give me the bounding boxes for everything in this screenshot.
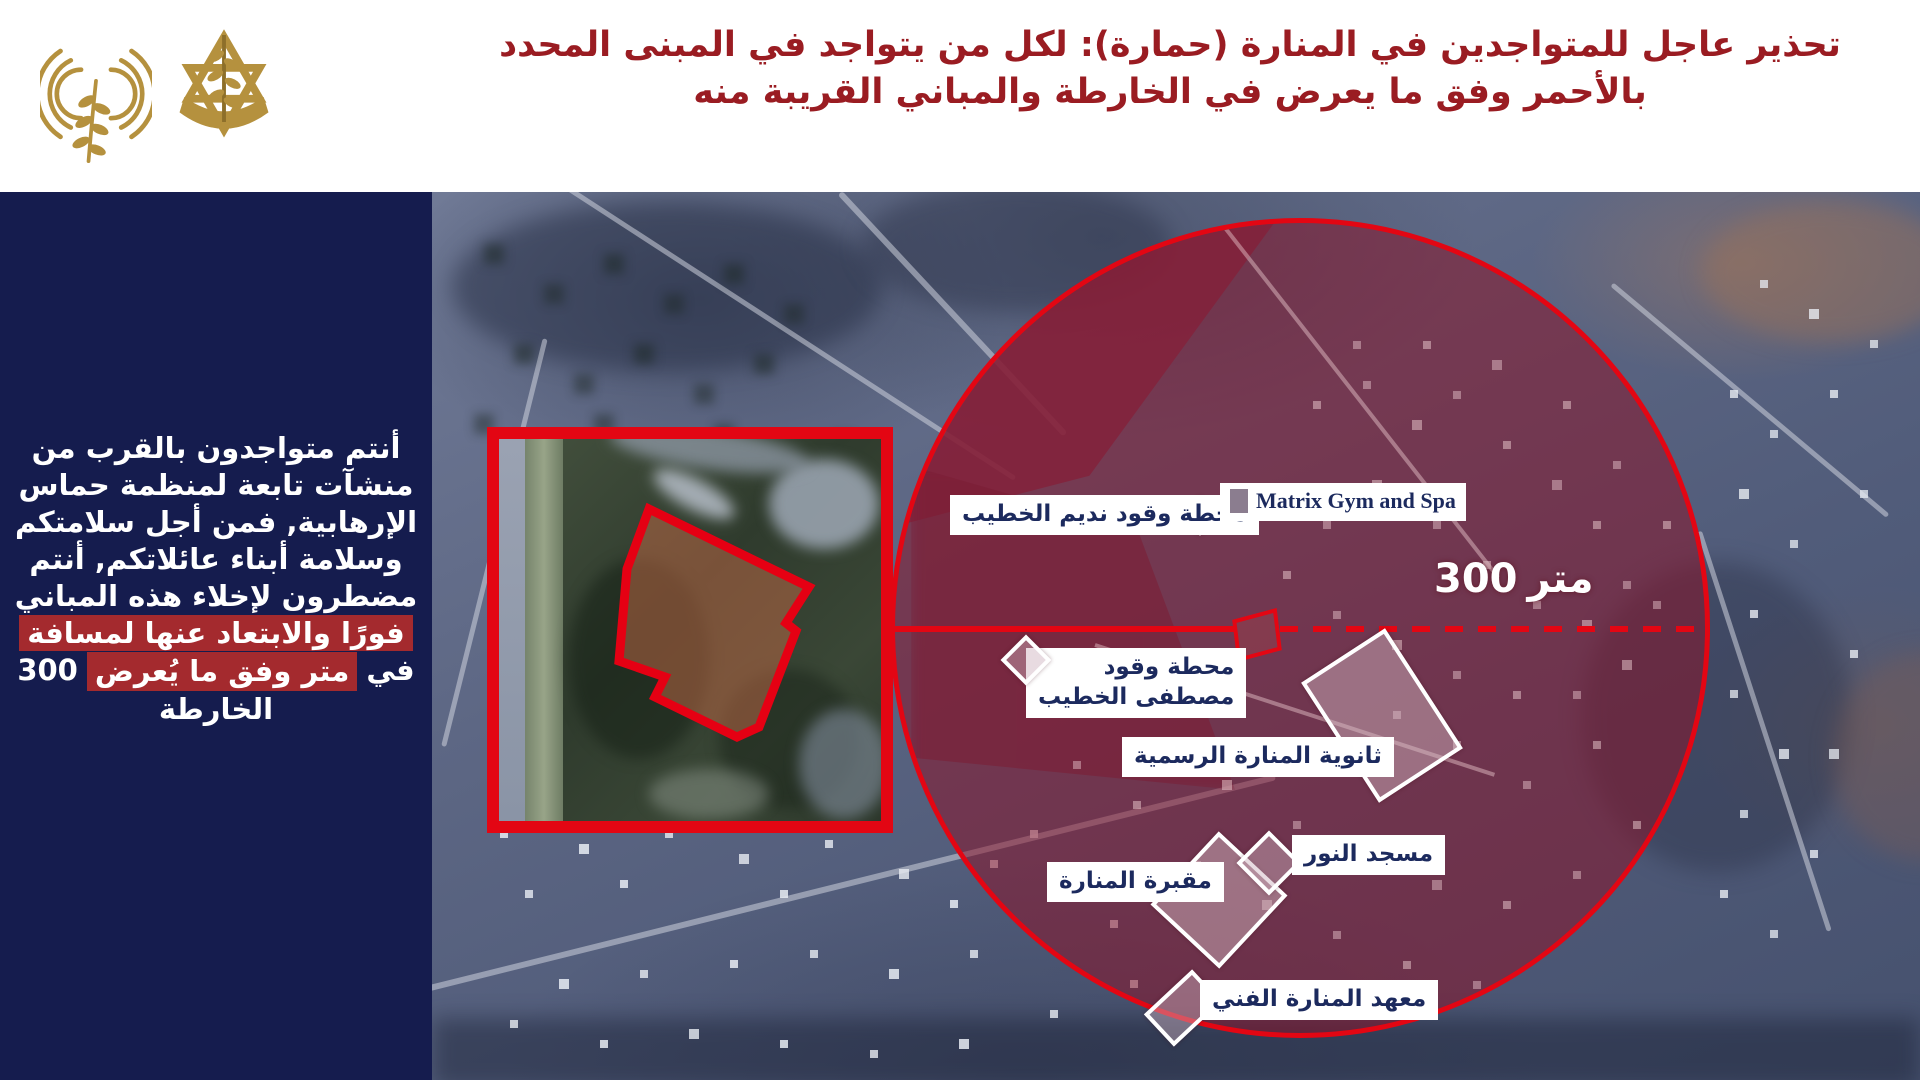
warning-title: تحذير عاجل للمتواجدين في المنارة (حمارة)… [440, 22, 1900, 116]
highlighted-phrase: متر وفق ما يُعرض [87, 652, 357, 691]
sidebar-warning-text: أنتم متواجدون بالقرب من منشآت تابعة لمنظ… [0, 430, 432, 728]
label-matrix-gym: Matrix Gym and Spa [1220, 483, 1466, 521]
distance-unit: متر [1528, 556, 1594, 602]
inset-zoom-image [487, 427, 893, 833]
label-mosque: مسجد النور [1292, 835, 1445, 875]
header: تحذير عاجل للمتواجدين في المنارة (حمارة)… [0, 0, 1920, 192]
village-speckle [895, 223, 899, 227]
distance-label: 300 متر [1434, 556, 1593, 602]
label-gas-station-nadim: محطة وقود نديم الخطيب [950, 495, 1259, 535]
warning-line: منشآت تابعة لمنظمة حماس [0, 467, 432, 504]
logo-group [40, 18, 290, 168]
warning-title-line1: تحذير عاجل للمتواجدين في المنارة (حمارة)… [440, 22, 1900, 69]
mustafa-label-line1: محطة وقود [1038, 652, 1234, 682]
connector-line [891, 626, 1236, 632]
map-texture [1702, 202, 1920, 342]
warning-line-highlighted: فورًا والابتعاد عنها لمسافة [0, 615, 432, 652]
warning-line-distance: 300 متر وفق ما يُعرض في [0, 652, 432, 691]
label-gas-station-mustafa: محطة وقود مصطفى الخطيب [1026, 648, 1246, 718]
sidebar: أنتم متواجدون بالقرب من منشآت تابعة لمنظ… [0, 192, 432, 1080]
matrix-marker [1230, 489, 1248, 513]
warning-line: أنتم متواجدون بالقرب من [0, 430, 432, 467]
label-institute: معهد المنارة الفني [1200, 980, 1438, 1020]
warning-line: الإرهابية, فمن أجل سلامتكم [0, 504, 432, 541]
distance-number: 300 [17, 652, 78, 691]
broadcast-olive-branch-icon [40, 23, 152, 163]
idf-emblem-icon [166, 29, 282, 157]
target-building-outline [499, 439, 881, 821]
warning-line-tail: في [366, 652, 414, 691]
warning-line: وسلامة أبناء عائلاتكم, أنتم [0, 541, 432, 578]
mustafa-label-line2: مصطفى الخطيب [1038, 682, 1234, 712]
label-school: ثانوية المنارة الرسمية [1122, 737, 1394, 777]
radius-dashed-line [1280, 626, 1708, 632]
trees-speckle [432, 192, 436, 196]
warning-line: الخارطة [0, 691, 432, 728]
satellite-map: 300 متر محطة وقود نديم الخطيب Matrix Gym… [432, 192, 1920, 1080]
warning-line: مضطرون لإخلاء هذه المباني [0, 578, 432, 615]
warning-poster: تحذير عاجل للمتواجدين في المنارة (حمارة)… [0, 0, 1920, 1080]
warning-title-line2: بالأحمر وفق ما يعرض في الخارطة والمباني … [440, 69, 1900, 116]
label-cemetery: مقبرة المنارة [1047, 862, 1224, 902]
distance-value: 300 [1434, 556, 1518, 602]
matrix-label-text: Matrix Gym and Spa [1256, 486, 1456, 516]
